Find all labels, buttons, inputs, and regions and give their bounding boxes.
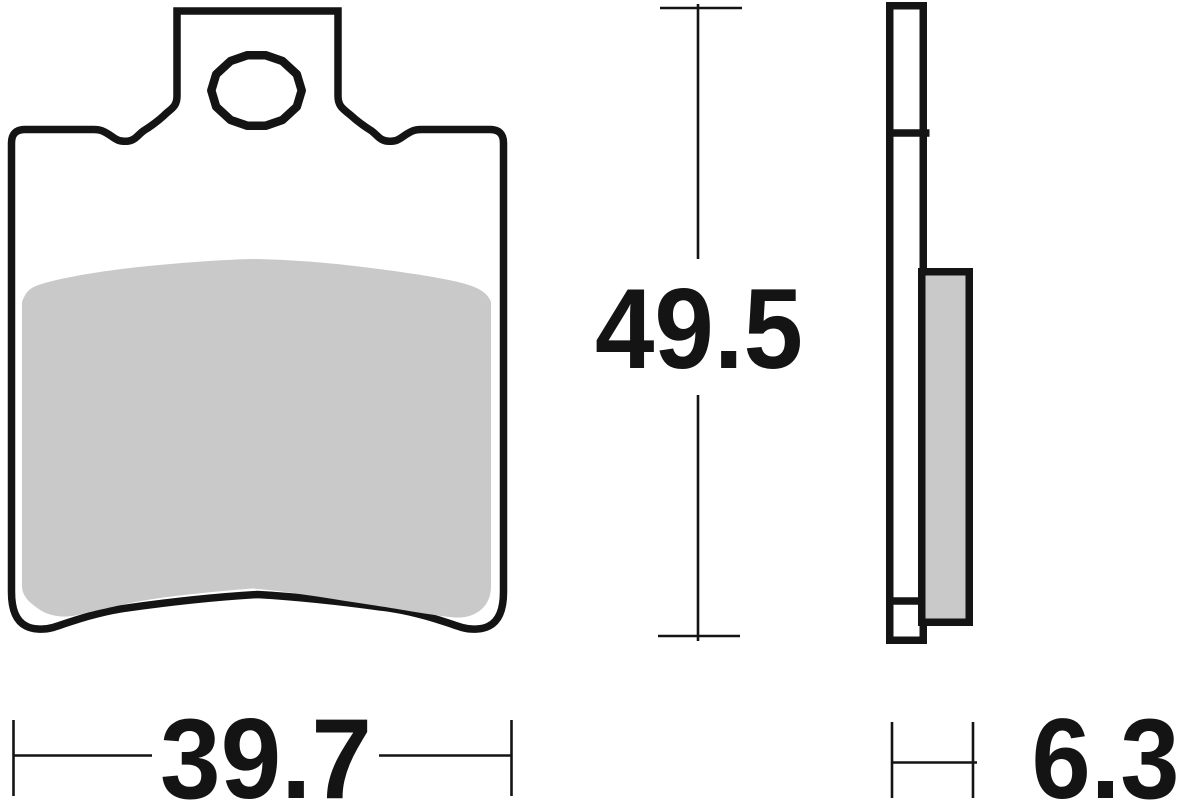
svg-text:49.5: 49.5 — [595, 266, 803, 393]
svg-text:39.7: 39.7 — [160, 696, 372, 800]
svg-text:6.3: 6.3 — [1032, 696, 1180, 800]
